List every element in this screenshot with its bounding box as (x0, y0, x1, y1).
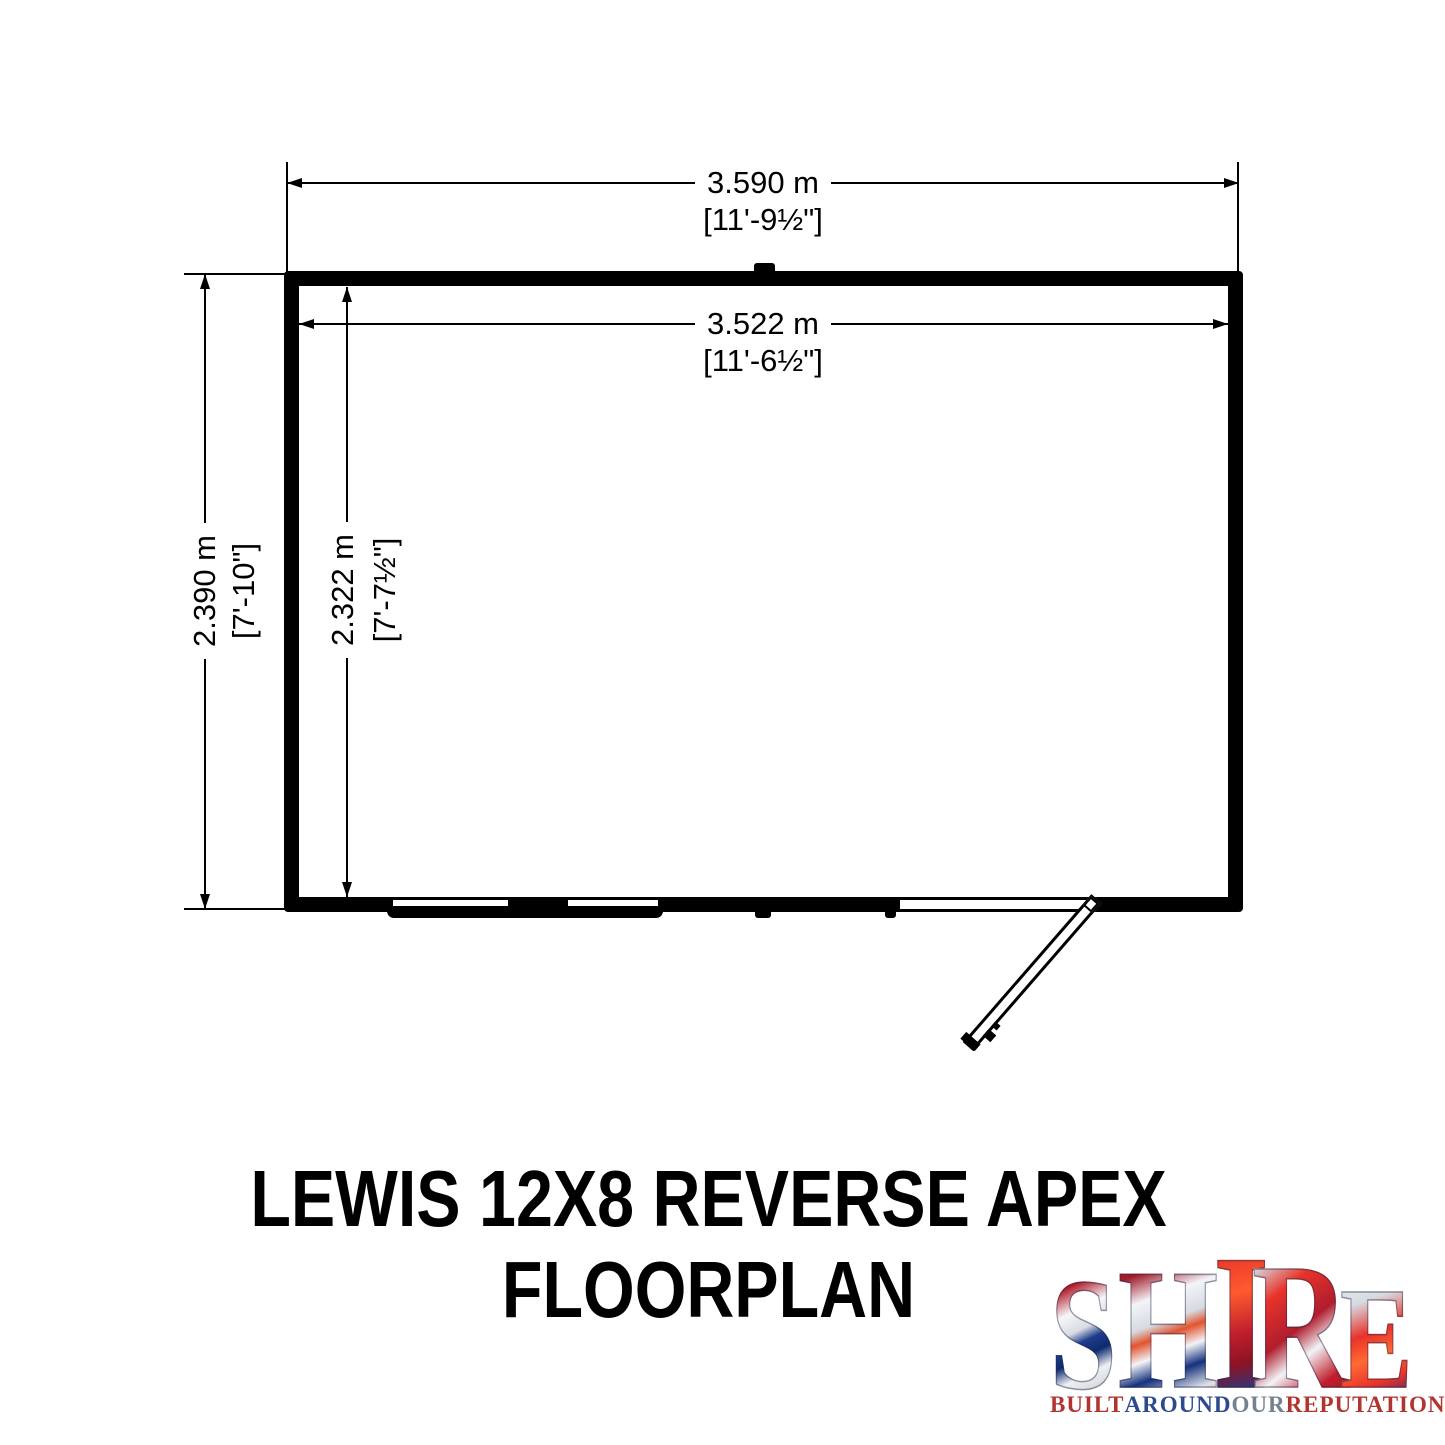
dim-arrow-up-icon (342, 287, 352, 302)
dim-width-internal-metric: 3.522 m (287, 305, 1239, 343)
door-threshold-line-top (900, 897, 1092, 900)
dim-depth-overall-imperial: [7'-10"] (225, 431, 263, 751)
door-jamb (885, 912, 896, 918)
logo-letter-h: H (1118, 1244, 1218, 1416)
logo-tagline: BUILT AROUND OUR REPUTATION (1050, 1392, 1422, 1418)
dim-depth-internal-imperial: [7'-7½"] (366, 430, 404, 750)
dim-width-overall-imperial: [11'-9½"] (287, 201, 1239, 239)
door-threshold-line-bottom (900, 909, 1092, 912)
tagline-word: BUILT (1050, 1392, 1124, 1418)
logo-letter-s: S (1050, 1254, 1117, 1414)
door-end-cap (960, 1032, 980, 1051)
dim-arrow-up-icon (200, 274, 210, 289)
front-window-pane-left (393, 900, 508, 906)
tagline-word: REPUTATION (1286, 1392, 1445, 1418)
dim-depth-internal-metric: 2.322 m (324, 430, 362, 750)
tagline-word: OUR (1231, 1392, 1285, 1418)
dim-arrow-down-icon (200, 894, 210, 909)
dim-width-overall-metric: 3.590 m (287, 164, 1239, 202)
door-handle-icon (983, 1029, 996, 1042)
door-leaf (963, 894, 1102, 1051)
tagline-word: AROUND (1124, 1392, 1231, 1418)
title-line-1: LEWIS 12X8 REVERSE APEX (109, 1153, 1308, 1244)
logo-letter-e: E (1340, 1267, 1413, 1412)
logo-letter-r: R (1252, 1237, 1350, 1417)
door-handle-icon (991, 1021, 1000, 1030)
apex-ridge-marker-bottom (755, 911, 771, 918)
dim-width-internal-imperial: [11'-6½"] (287, 342, 1239, 380)
dim-arrow-down-icon (342, 882, 352, 897)
apex-ridge-marker-top (754, 263, 775, 273)
front-window-pane-right (568, 900, 658, 906)
dim-depth-overall-metric: 2.390 m (186, 431, 224, 751)
